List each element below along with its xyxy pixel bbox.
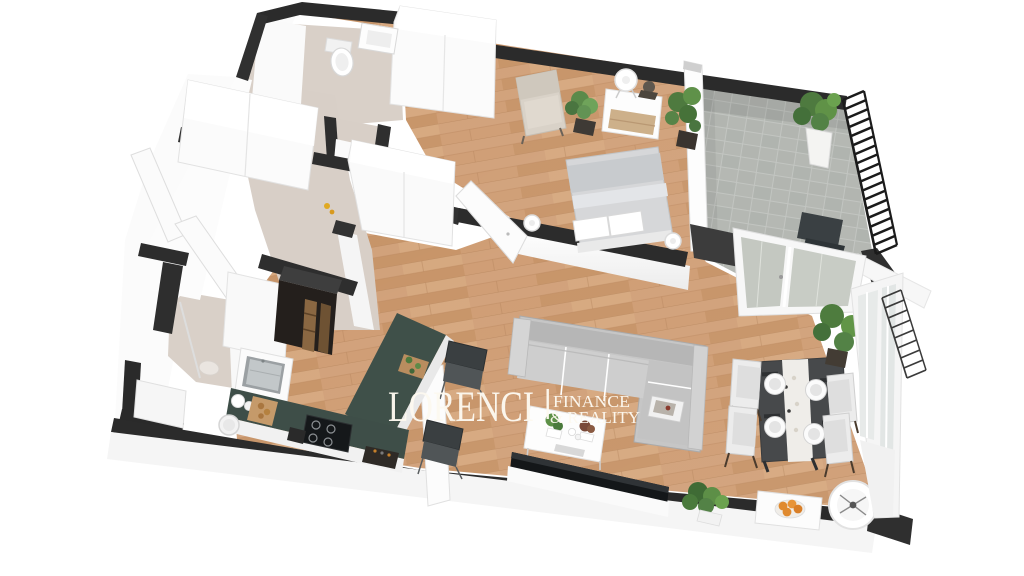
svg-text:& REALITY: & REALITY [550, 408, 640, 427]
svg-text:LORENCI: LORENCI [388, 384, 534, 431]
